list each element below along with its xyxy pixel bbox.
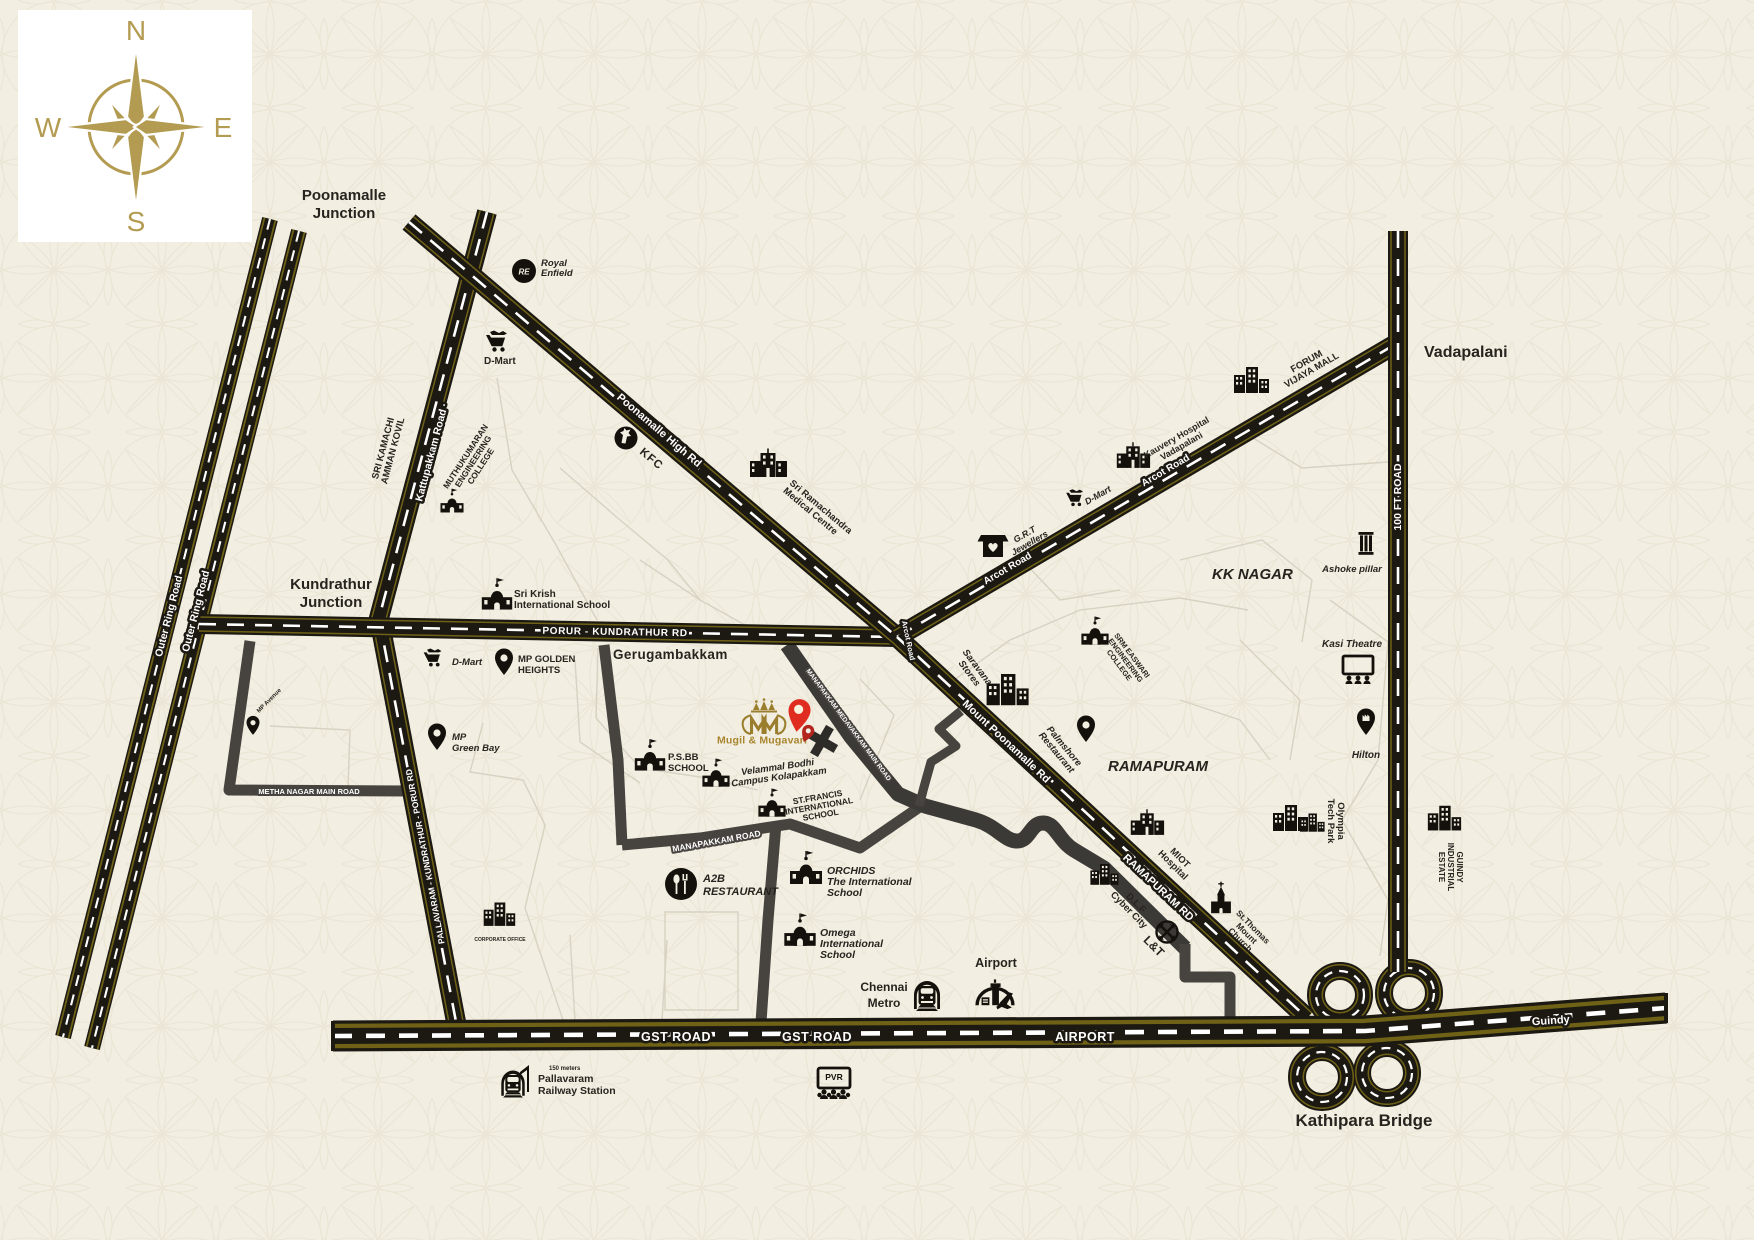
svg-text:Hilton: Hilton [1352, 750, 1380, 761]
svg-text:N: N [126, 15, 146, 46]
svg-text:150 meters: 150 meters [549, 1066, 581, 1072]
svg-text:Gerugambakkam: Gerugambakkam [613, 647, 728, 662]
svg-text:Kathipara Bridge: Kathipara Bridge [1296, 1111, 1433, 1130]
svg-text:OlympiaTech Park: OlympiaTech Park [1325, 799, 1346, 844]
svg-text:Mugil & Mugavari: Mugil & Mugavari [717, 735, 807, 747]
svg-text:S: S [127, 206, 146, 237]
svg-text:GST ROAD: GST ROAD [782, 1030, 852, 1044]
svg-text:GST ROAD: GST ROAD [641, 1030, 711, 1044]
svg-text:PVR: PVR [825, 1072, 842, 1082]
svg-text:AIRPORT: AIRPORT [1055, 1030, 1115, 1044]
svg-text:CORPORATE OFFICE: CORPORATE OFFICE [474, 937, 526, 943]
svg-text:W: W [35, 112, 62, 143]
svg-text:METHA NAGAR MAIN ROAD: METHA NAGAR MAIN ROAD [258, 787, 360, 796]
svg-text:Airport: Airport [975, 956, 1018, 970]
svg-text:Ashoke pillar: Ashoke pillar [1321, 564, 1383, 575]
svg-text:Kasi Theatre: Kasi Theatre [1322, 639, 1382, 650]
svg-text:RE: RE [518, 268, 530, 277]
svg-text:KK NAGAR: KK NAGAR [1212, 566, 1293, 583]
svg-text:E: E [214, 112, 233, 143]
svg-text:D-Mart: D-Mart [484, 356, 516, 367]
svg-text:RAMAPURAM: RAMAPURAM [1108, 758, 1208, 775]
svg-text:Guindy: Guindy [1531, 1014, 1570, 1029]
svg-text:100 FT ROAD: 100 FT ROAD [1392, 463, 1404, 531]
svg-text:PoonamalleJunction: PoonamalleJunction [302, 187, 386, 222]
svg-text:KundrathurJunction: KundrathurJunction [290, 576, 372, 611]
svg-text:D-Mart: D-Mart [452, 657, 483, 668]
svg-text:Vadapalani: Vadapalani [1424, 344, 1508, 361]
